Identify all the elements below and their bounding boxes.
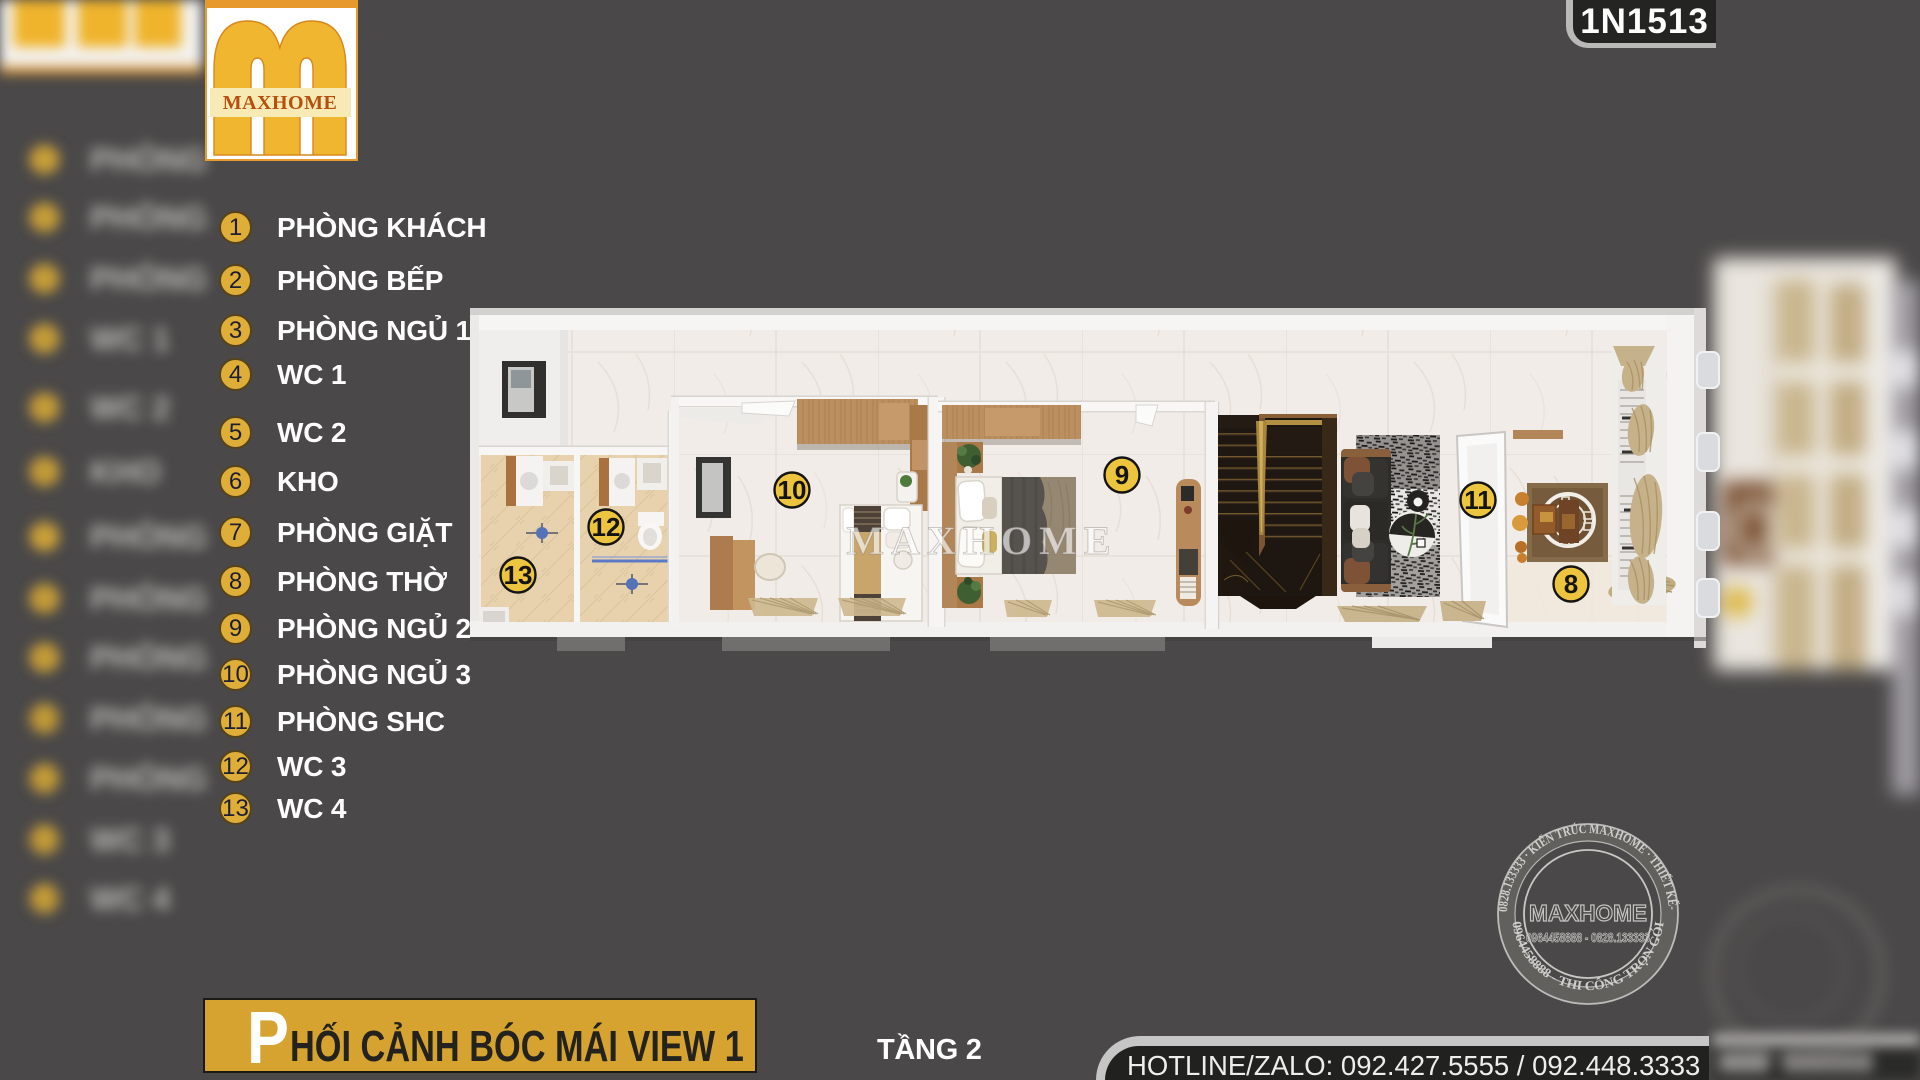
svg-text:13: 13 [504, 560, 533, 590]
svg-text:10: 10 [778, 475, 807, 505]
svg-text:11: 11 [1464, 485, 1492, 515]
svg-text:9: 9 [1115, 460, 1129, 490]
svg-text:8: 8 [1564, 569, 1578, 599]
svg-text:MAXHOME: MAXHOME [1529, 900, 1647, 926]
svg-text:12: 12 [592, 512, 621, 542]
svg-text:MAXHOME: MAXHOME [846, 518, 1117, 563]
svg-text:0964458888 - 0828.133333: 0964458888 - 0828.133333 [1526, 930, 1650, 945]
svg-text:0828.133333 · KIẾN TRÚC MAXHOM: 0828.133333 · KIẾN TRÚC MAXHOME · THIẾT … [1495, 821, 1681, 912]
